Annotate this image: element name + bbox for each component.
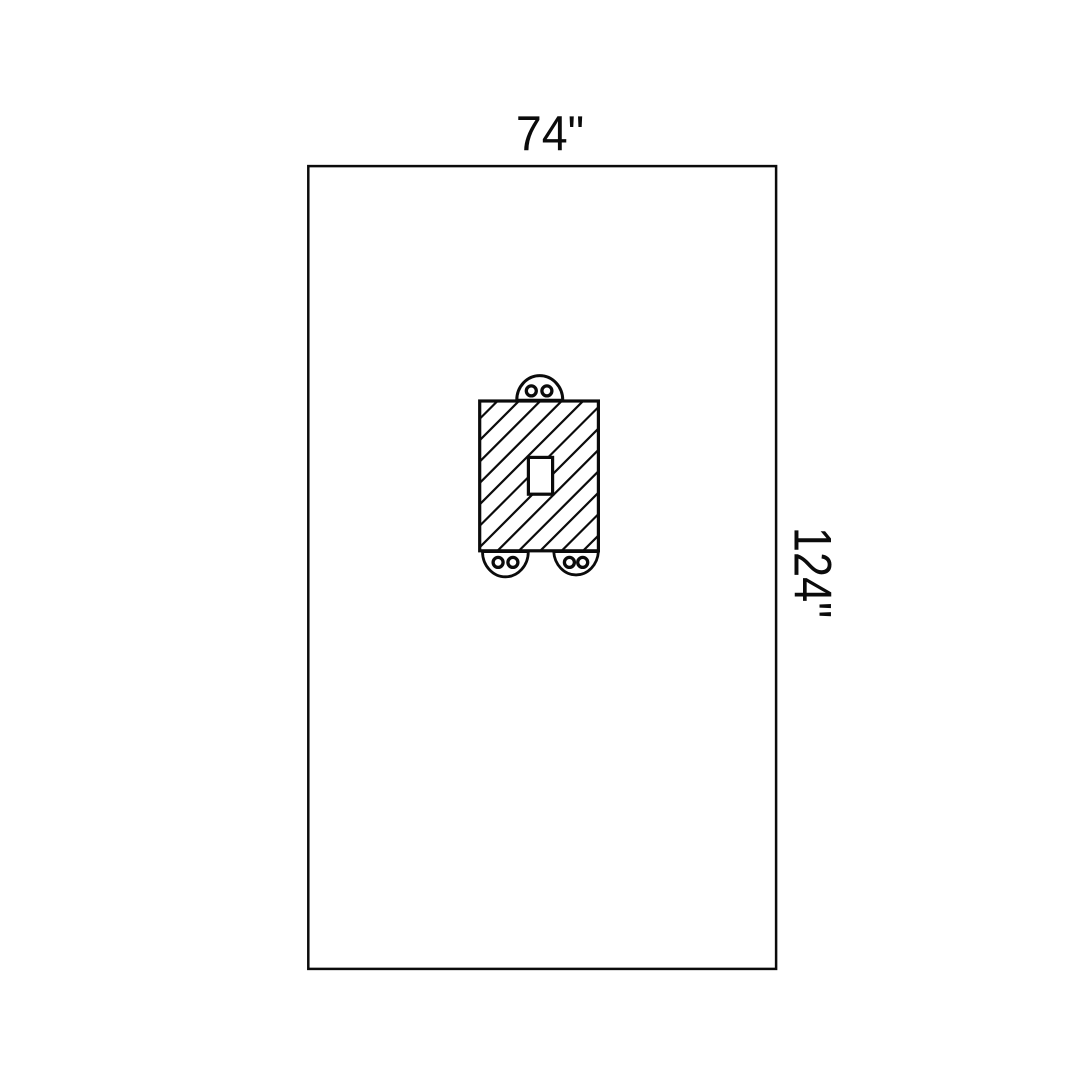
- svg-text:74": 74": [516, 106, 584, 161]
- svg-text:124": 124": [782, 527, 841, 618]
